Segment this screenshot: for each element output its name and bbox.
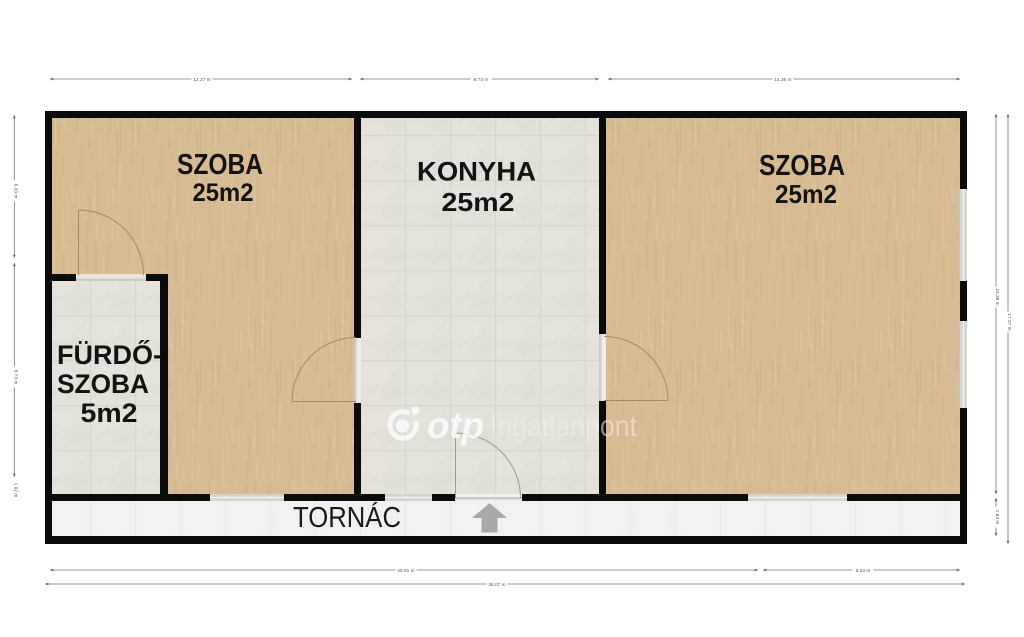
svg-text:8.73 m: 8.73 m — [12, 370, 18, 385]
svg-text:SZOBA: SZOBA — [177, 149, 263, 181]
svg-text:1.92 m: 1.92 m — [12, 483, 18, 498]
svg-text:25m2: 25m2 — [775, 179, 837, 209]
svg-text:15.38 m: 15.38 m — [994, 288, 1000, 305]
svg-text:KONYHA: KONYHA — [417, 157, 536, 187]
svg-text:Ingatlanpont: Ingatlanpont — [490, 410, 638, 443]
svg-text:25.61 m: 25.61 m — [397, 568, 414, 574]
svg-text:SZOBA: SZOBA — [57, 369, 149, 399]
svg-text:9.74 m: 9.74 m — [474, 77, 489, 83]
svg-text:17.27 m: 17.27 m — [1006, 313, 1012, 330]
svg-text:SZOBA: SZOBA — [759, 150, 845, 182]
svg-text:12.27 m: 12.27 m — [193, 77, 210, 83]
svg-text:25m2: 25m2 — [442, 187, 515, 217]
svg-text:36.07 m: 36.07 m — [488, 582, 505, 588]
svg-text:25m2: 25m2 — [193, 179, 254, 207]
svg-text:TORNÁC: TORNÁC — [293, 501, 401, 534]
svg-text:FÜRDŐ-: FÜRDŐ- — [57, 339, 162, 370]
svg-text:5m2: 5m2 — [81, 398, 138, 428]
svg-text:6.33 m: 6.33 m — [12, 184, 18, 199]
svg-text:14.36 m: 14.36 m — [774, 77, 791, 83]
svg-text:otp: otp — [427, 405, 484, 446]
svg-text:1.84 m: 1.84 m — [994, 510, 1000, 525]
svg-text:8.03 m: 8.03 m — [856, 568, 871, 574]
